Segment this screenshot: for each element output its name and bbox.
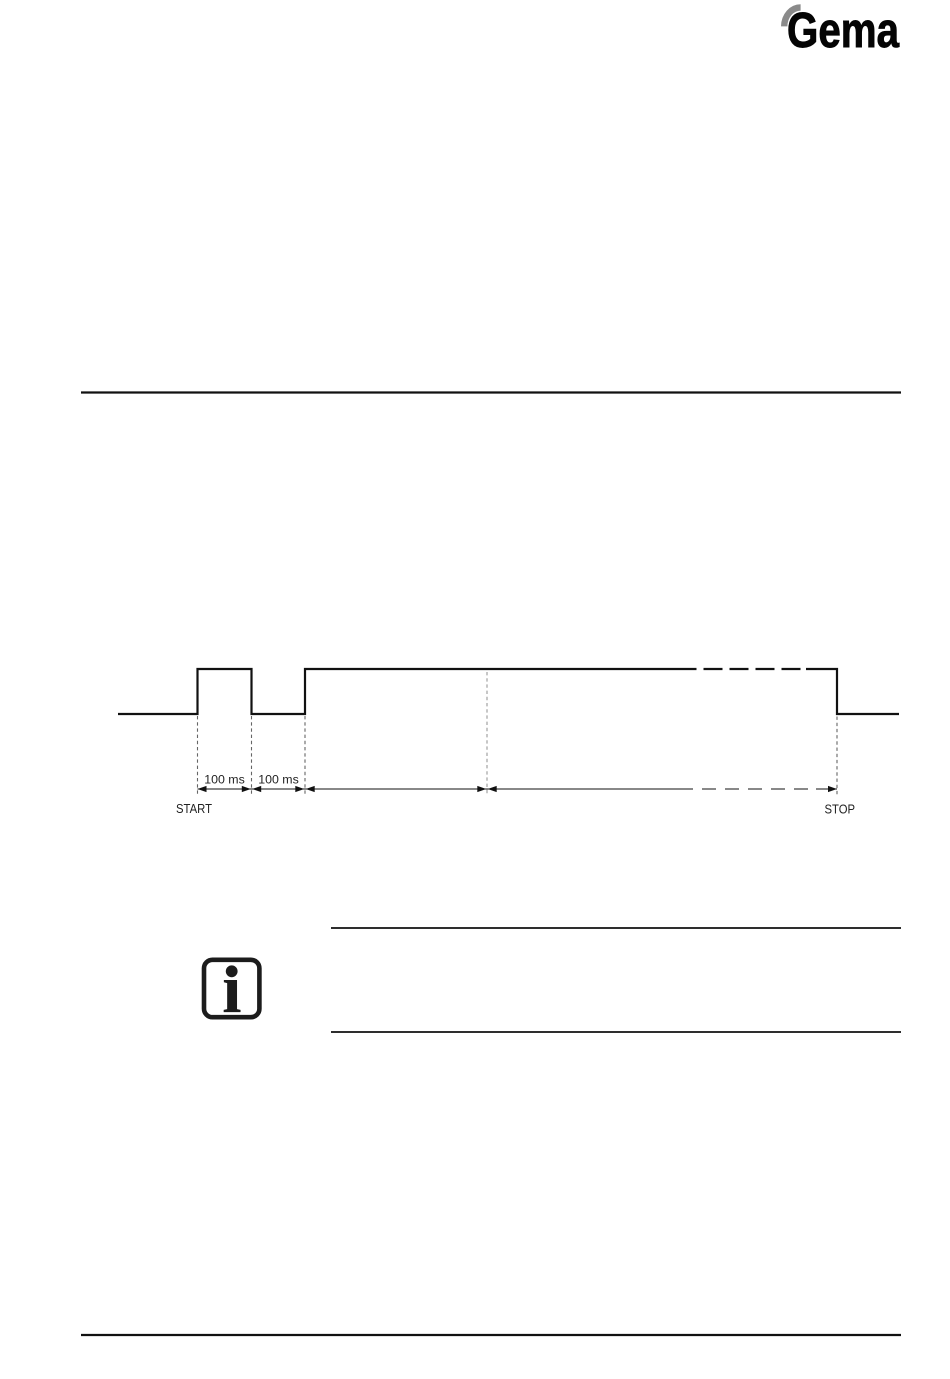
svg-text:100 ms: 100 ms	[258, 773, 299, 787]
svg-text:STOP: STOP	[825, 803, 856, 817]
svg-text:Gema: Gema	[787, 3, 899, 58]
svg-text:START: START	[176, 802, 212, 816]
svg-text:100 ms: 100 ms	[204, 773, 245, 787]
svg-text:i: i	[222, 951, 241, 1028]
